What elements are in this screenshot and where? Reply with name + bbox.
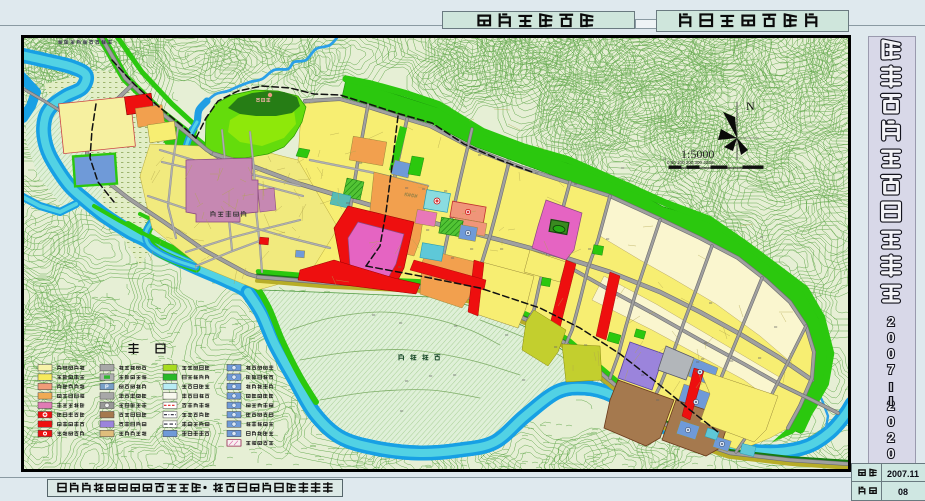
- svg-text:1:5000: 1:5000: [681, 147, 714, 161]
- svg-text:2007.11: 2007.11: [887, 469, 919, 479]
- svg-text:0 50 100 200 300: 0 50 100 200 300 400m: [667, 160, 715, 165]
- svg-text:08: 08: [898, 487, 908, 497]
- svg-text:P: P: [105, 385, 109, 391]
- svg-text:2: 2: [887, 314, 894, 329]
- svg-text:7: 7: [887, 362, 894, 377]
- svg-text:2: 2: [887, 430, 894, 445]
- svg-text:0: 0: [887, 330, 894, 345]
- svg-text:0: 0: [887, 346, 894, 361]
- svg-text:N: N: [746, 99, 755, 113]
- svg-text:0: 0: [887, 414, 894, 429]
- svg-text:0: 0: [887, 446, 894, 461]
